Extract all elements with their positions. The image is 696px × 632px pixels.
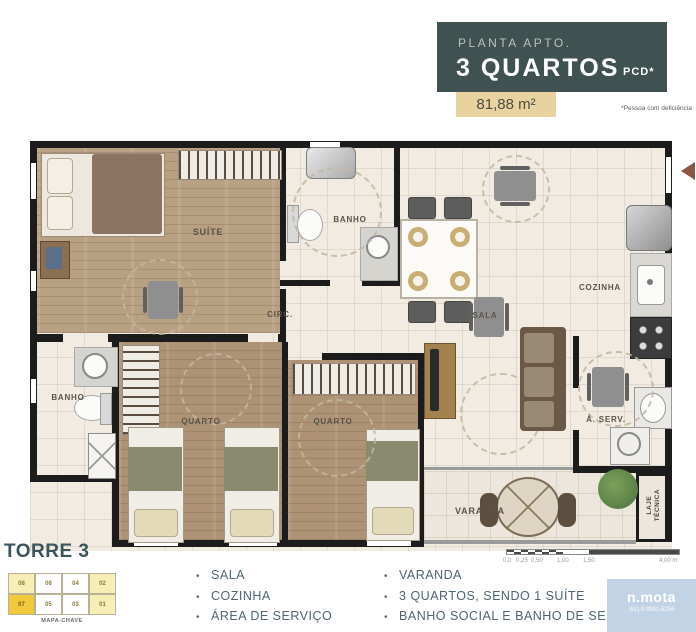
pillow [47, 196, 73, 230]
scale-tick: 1,00 [557, 558, 569, 564]
scale-tick: 0,50 [531, 558, 543, 564]
pillow [47, 158, 73, 194]
key-map-unit-02: 02 [89, 573, 116, 594]
tower-title: TORRE 3 [4, 541, 90, 563]
key-map: 08 06 04 02 07 05 03 01 MAPA-CHAVE [8, 573, 116, 624]
builder-logo-phone: (61) 9 8981-8256 [607, 607, 696, 613]
room-label-quarto1: QUARTO [166, 417, 236, 426]
key-map-unit-06: 06 [35, 573, 62, 594]
feature-item: ÁREA DE SERVIÇO [196, 607, 332, 628]
place-setting [450, 227, 470, 247]
tv-icon [430, 349, 439, 411]
room-label-cozinha: COZINHA [571, 283, 629, 292]
place-setting [450, 271, 470, 291]
room-label-banho: BANHO [320, 215, 380, 224]
dining-chair [444, 197, 472, 219]
wheelchair-icon [592, 367, 624, 407]
stove [630, 317, 672, 359]
bed-blanket [92, 154, 162, 234]
header-title: 3 QUARTOS [456, 54, 619, 83]
key-map-unit-01: 01 [89, 594, 116, 615]
flyer-page: PLANTA APTO. 3 QUARTOS PCD* 81,88 m² *Pe… [0, 0, 696, 632]
scale-tick: 0,25 [516, 558, 528, 564]
pcd-footnote: *Pessoa com deficiência [592, 105, 692, 112]
graphic-scale: 0,0 0,25 0,50 1,00 1,50 4,00 m [506, 549, 680, 555]
room-label-aserv: Á. SERV. [575, 415, 637, 424]
pillow [372, 507, 414, 535]
patio-chair [558, 493, 576, 527]
room-label-laje: LAJE TÉCNICA [646, 482, 662, 528]
scale-tick: 1,50 [583, 558, 595, 564]
bed-blanket [224, 447, 278, 491]
wardrobe [122, 345, 160, 435]
key-map-unit-07: 07 [8, 594, 35, 615]
room-label-suite: SUÍTE [175, 227, 241, 237]
sofa-cushion [524, 401, 554, 427]
bed-blanket [128, 447, 182, 491]
builder-logo: n.mota (61) 9 8981-8256 [607, 579, 696, 632]
entrance-arrow-icon [681, 162, 695, 180]
room-label-banho2: BANHO [40, 393, 96, 402]
wheelchair-icon [494, 171, 536, 201]
wall-banho-bottom-1 [280, 280, 330, 286]
sofa-cushion [524, 333, 554, 363]
turning-circle [180, 353, 252, 425]
wall-quartos-divider [282, 342, 288, 540]
wall-mid-2 [108, 334, 248, 342]
turning-circle [292, 167, 382, 257]
wheelchair-icon [148, 281, 178, 319]
sofa-cushion [524, 367, 554, 397]
faucet [647, 279, 653, 285]
key-map-unit-05: 05 [35, 594, 62, 615]
scale-checker [507, 552, 563, 554]
key-map-unit-08: 08 [8, 573, 35, 594]
scale-solid-bar [589, 550, 679, 554]
pillow [134, 509, 178, 537]
tv-rack [424, 343, 456, 419]
room-label-varanda: VARANDA [438, 506, 522, 516]
header-subtitle: PLANTA APTO. [458, 36, 572, 50]
window-suite-2 [31, 271, 36, 291]
scale-tick: 4,00 m [659, 558, 677, 564]
feature-item: SALA [196, 566, 332, 587]
wardrobe [292, 363, 416, 395]
place-setting [408, 227, 428, 247]
key-map-unit-03: 03 [62, 594, 89, 615]
wall-mid-1 [37, 334, 63, 342]
features-list-left: SALA COZINHA ÁREA DE SERVIÇO [196, 566, 332, 628]
key-map-label: MAPA-CHAVE [8, 618, 116, 624]
scale-tick: 0,0 [503, 558, 511, 564]
sink [82, 353, 108, 379]
fridge [626, 205, 672, 251]
varanda-railing [424, 540, 636, 544]
wall-mid-3 [278, 334, 286, 342]
window-quarto2 [367, 541, 411, 546]
header-title-suffix: PCD* [623, 66, 655, 78]
wardrobe [178, 150, 282, 180]
turning-circle [298, 399, 376, 477]
plant [598, 469, 638, 509]
wall-quarto2-top [322, 353, 418, 360]
window-banho2 [31, 379, 36, 403]
floor-plan: SUÍTE BANHO CIRC. SALA COZINHA QUARTO QU… [30, 141, 672, 551]
room-label-circ: CIRC. [255, 310, 305, 319]
wall-notch-v [112, 475, 119, 547]
feature-item: COZINHA [196, 587, 332, 608]
builder-logo-name: n.mota [607, 589, 696, 605]
key-map-unit-04: 04 [62, 573, 89, 594]
room-label-sala: SALA [460, 311, 510, 320]
dining-chair [408, 197, 436, 219]
washer-drum [617, 432, 641, 456]
room-label-quarto2: QUARTO [298, 417, 368, 426]
window-suite [31, 163, 36, 199]
nightstand-decor [46, 247, 62, 269]
toilet-tank [100, 393, 112, 425]
shower [88, 433, 116, 479]
place-setting [408, 271, 428, 291]
entry-door-gap [666, 157, 671, 193]
area-badge: 81,88 m² [456, 92, 556, 117]
pillow [230, 509, 274, 537]
kitchen-sink [637, 265, 665, 305]
varanda-glass-door [424, 467, 573, 470]
wall-aserv-lower [573, 430, 579, 468]
dining-chair [408, 301, 436, 323]
